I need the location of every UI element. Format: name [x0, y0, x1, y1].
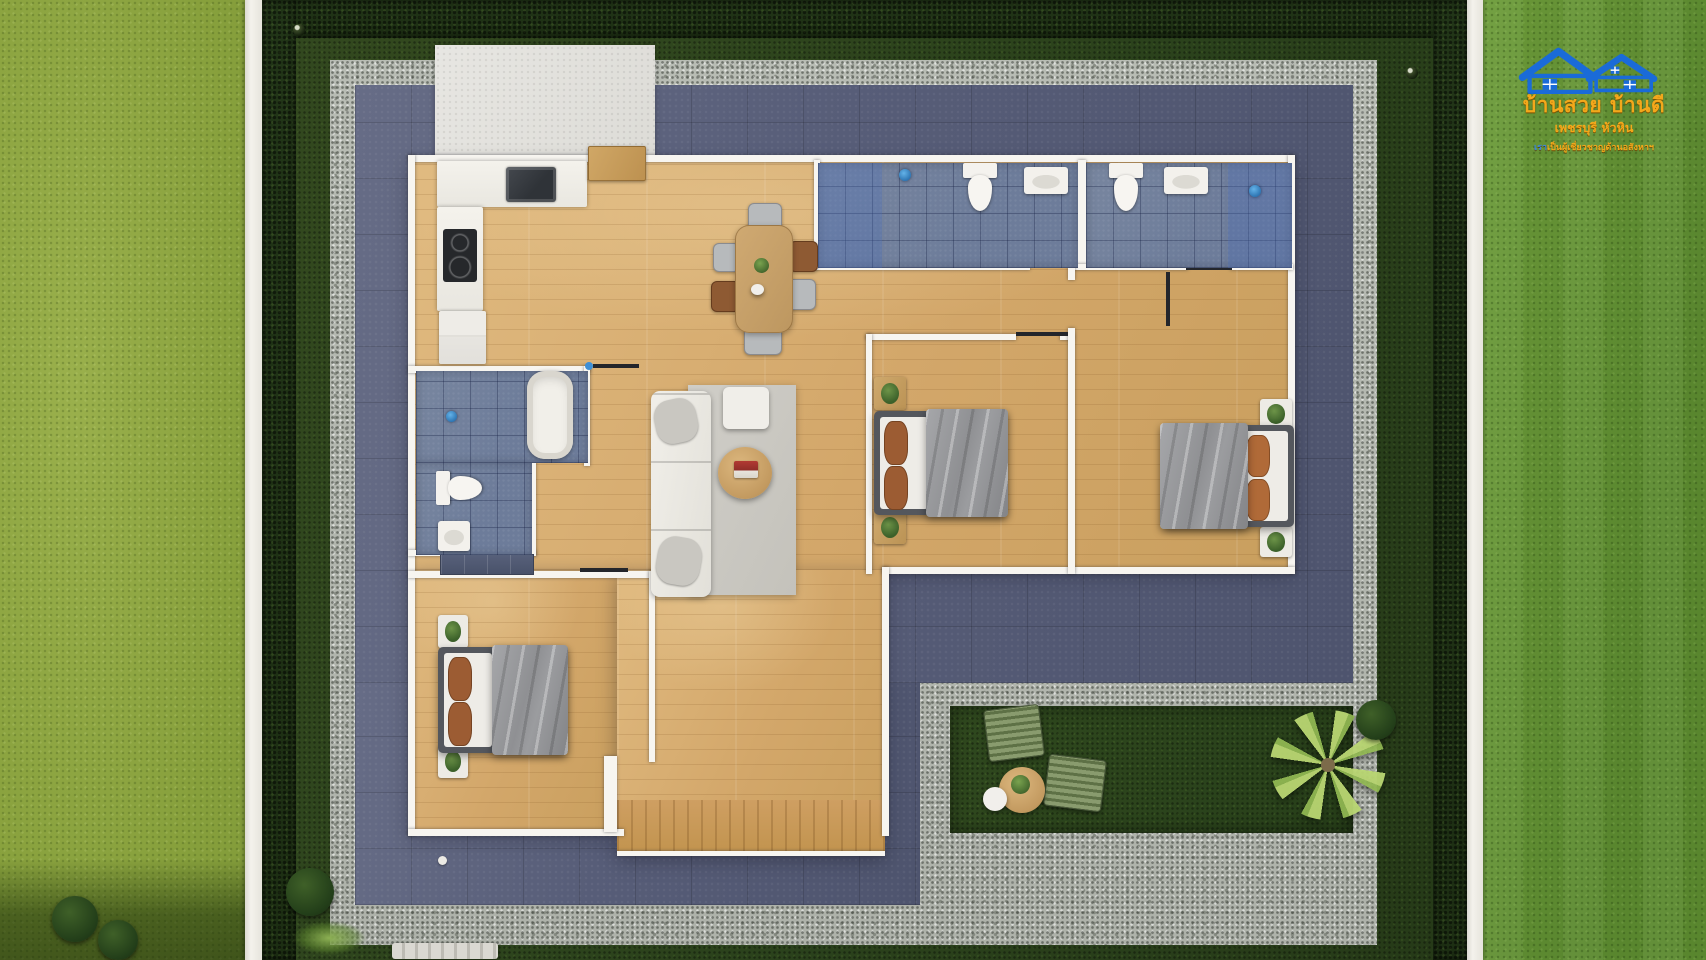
- wall-bed3-right: [649, 571, 655, 762]
- cooktop: [443, 229, 477, 282]
- coffee-table-books: [734, 461, 758, 478]
- window-mark-bed3: [580, 568, 628, 572]
- hedge-left: [262, 0, 296, 960]
- wall-left: [408, 155, 415, 836]
- bed3-pillow-2: [448, 702, 472, 746]
- dining-centerpiece-plant: [754, 258, 769, 273]
- bed2-blanket: [1160, 423, 1248, 529]
- lounge-chair-2: [1043, 754, 1107, 813]
- bath-b-sink: [1164, 167, 1208, 194]
- bath-c-sink: [438, 521, 470, 551]
- logo-tagline: เราเป็นผู้เชี่ยวชาญด้านอสังหาฯ: [1506, 140, 1682, 154]
- wall-wing-bottom: [408, 829, 624, 836]
- bath-b-toilet: [1106, 163, 1146, 213]
- fixture-dot-living: [585, 362, 593, 370]
- entry-cabinet: [588, 146, 646, 181]
- floor-plan-render: บ้านสวย บ้านดี เพชรบุรี หัวหิน เราเป็นผู…: [0, 0, 1706, 960]
- logo-tagline-prefix: เรา: [1534, 143, 1547, 153]
- patio-stool: [983, 787, 1007, 811]
- lounge-chair-1: [983, 704, 1045, 762]
- logo-subtitle: เพชรบุรี หัวหิน: [1506, 118, 1682, 138]
- garden-bench: [392, 943, 498, 959]
- bed1-nightstand-bottom: [874, 511, 906, 544]
- wall-bath-divider: [1078, 160, 1086, 268]
- kitchen-sink: [506, 167, 556, 202]
- door-mark-bed1: [1016, 332, 1068, 336]
- hedge-right: [1433, 0, 1467, 960]
- door-leaf-bed2: [1166, 272, 1170, 326]
- deck-boards: [617, 800, 885, 851]
- wall-wing-right: [882, 567, 889, 836]
- window-mark-living: [593, 364, 639, 368]
- bed1-nightstand-top: [874, 377, 906, 410]
- bed3-nightstand-top: [438, 615, 468, 648]
- bath-c-toilet: [436, 468, 484, 508]
- deck-edge: [617, 851, 885, 856]
- dining-table: [735, 225, 793, 333]
- bed2-pillow-2: [1246, 479, 1270, 521]
- bush-right: [1356, 700, 1396, 740]
- bathtub: [527, 371, 573, 459]
- fern-bottom-left: [282, 916, 376, 960]
- wall-beds-divider: [1068, 328, 1075, 574]
- bed3-pillow-1: [448, 657, 472, 701]
- bath-b-shower-zone: [1228, 163, 1292, 268]
- bath-a-sink: [1024, 167, 1068, 194]
- bed1-pillow-1: [884, 421, 908, 465]
- bush-outside-1: [52, 896, 98, 942]
- dining-dish: [751, 284, 764, 295]
- bath-b-showerhead: [1249, 185, 1261, 197]
- fridge: [439, 311, 486, 364]
- logo-houses-icon: [1518, 42, 1670, 94]
- fence-right: [1467, 0, 1483, 960]
- bed3-blanket: [492, 645, 568, 755]
- bath-c-showerhead: [446, 411, 457, 422]
- sprinkler-white: [438, 856, 447, 865]
- bed2-nightstand-bottom: [1260, 527, 1292, 557]
- bush-bottom-left: [286, 868, 334, 916]
- bed1-pillow-2: [884, 466, 908, 510]
- sprinkler-dot-3: [1406, 67, 1418, 79]
- ottoman: [723, 387, 769, 429]
- bath-a-showerhead: [899, 169, 911, 181]
- logo-title: บ้านสวย บ้านดี: [1506, 94, 1682, 116]
- hedge-top: [262, 0, 1467, 38]
- patio-table-plant: [1011, 775, 1030, 794]
- bed1-blanket: [926, 409, 1008, 517]
- grass-strip-left: [0, 0, 245, 960]
- logo-tagline-text: เป็นผู้เชี่ยวชาญด้านอสังหาฯ: [1547, 143, 1654, 153]
- wall-bed1-left: [866, 334, 872, 574]
- wall-main-bottom: [882, 567, 1295, 574]
- bath-a-toilet: [960, 163, 1000, 213]
- bath-a-shower-zone: [818, 163, 882, 268]
- wall-bed1-top-1: [866, 334, 1016, 340]
- company-logo: บ้านสวย บ้านดี เพชรบุรี หัวหิน เราเป็นผู…: [1506, 42, 1682, 154]
- wall-stub-deck: [604, 756, 617, 832]
- sprinkler-dot-1: [293, 24, 305, 36]
- bed2-pillow-1: [1246, 435, 1270, 477]
- fence-left: [245, 0, 262, 960]
- wardrobe-bed3: [440, 554, 534, 575]
- dining-chair-right-1: [789, 241, 818, 272]
- bush-outside-2: [98, 920, 138, 960]
